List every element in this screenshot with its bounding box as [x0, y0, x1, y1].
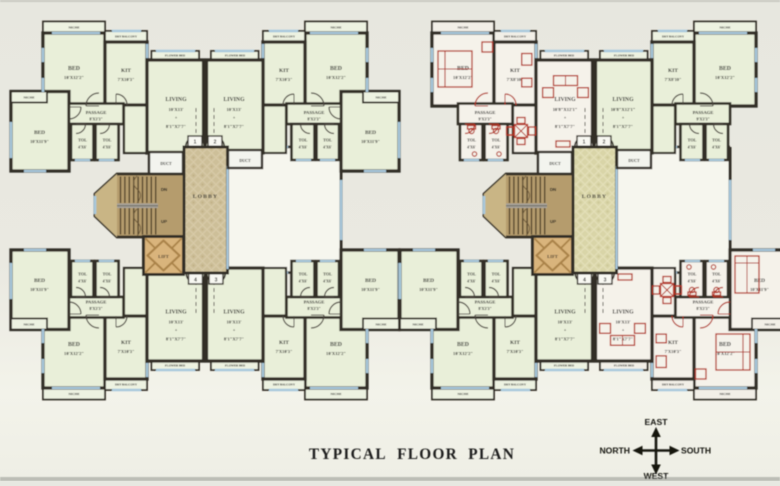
svg-text:8'1"X7'7": 8'1"X7'7" [224, 337, 245, 342]
svg-text:TOL: TOL [492, 138, 501, 143]
svg-text:KIT: KIT [668, 68, 678, 74]
svg-text:+: + [233, 115, 236, 120]
svg-text:4'X6': 4'X6' [323, 280, 332, 284]
svg-text:2: 2 [214, 140, 217, 146]
svg-text:10'X13': 10'X13' [615, 320, 630, 325]
svg-text:KIT: KIT [121, 68, 131, 74]
svg-text:TOL: TOL [688, 138, 697, 143]
svg-text:10'X13': 10'X13' [557, 320, 572, 325]
svg-text:9'X3'3": 9'X3'3" [696, 117, 709, 122]
svg-text:KIT: KIT [121, 340, 131, 346]
svg-text:NICHE: NICHE [764, 322, 776, 326]
svg-text:4'X6': 4'X6' [492, 146, 501, 150]
svg-text:4: 4 [194, 278, 197, 284]
svg-text:NICHE: NICHE [719, 26, 731, 30]
svg-text:FLOWER BED: FLOWER BED [614, 364, 635, 368]
svg-text:10'X11'9": 10'X11'9" [361, 287, 380, 292]
svg-text:DUCT: DUCT [549, 161, 561, 166]
svg-text:1: 1 [194, 140, 197, 146]
svg-text:NICHE: NICHE [23, 322, 35, 326]
svg-text:4: 4 [583, 278, 586, 284]
svg-text:10'X13': 10'X13' [226, 107, 241, 112]
svg-text:DRY BALCONY: DRY BALCONY [662, 35, 685, 39]
svg-text:LIVING: LIVING [223, 310, 245, 316]
svg-text:+: + [622, 328, 625, 333]
svg-text:FLOWER BED: FLOWER BED [225, 364, 246, 368]
svg-text:9'X3'3": 9'X3'3" [478, 117, 491, 122]
svg-text:TOL: TOL [467, 272, 476, 277]
svg-text:LIVING: LIVING [554, 310, 576, 316]
svg-text:8'X3'3": 8'X3'3" [89, 306, 102, 311]
svg-text:TOL: TOL [712, 138, 721, 143]
svg-text:PASSAGE: PASSAGE [475, 299, 496, 304]
svg-text:TOL: TOL [492, 272, 501, 277]
svg-text:NICHE: NICHE [23, 95, 35, 99]
svg-text:PASSAGE: PASSAGE [304, 110, 325, 115]
svg-text:PASSAGE: PASSAGE [475, 110, 496, 115]
svg-text:BED: BED [423, 278, 434, 284]
svg-text:FLOWER BED: FLOWER BED [165, 364, 186, 368]
svg-text:10'8"X12'1": 10'8"X12'1" [553, 107, 578, 112]
svg-text:BED: BED [68, 342, 80, 348]
svg-text:KIT: KIT [510, 340, 520, 346]
svg-text:DRY BALCONY: DRY BALCONY [115, 383, 138, 387]
svg-text:8'X3'3": 8'X3'3" [696, 306, 709, 311]
svg-text:NORTH: NORTH [599, 446, 630, 456]
svg-text:+: + [622, 115, 625, 120]
svg-text:KIT: KIT [279, 340, 289, 346]
svg-text:TOL: TOL [103, 272, 112, 277]
svg-text:EAST: EAST [645, 417, 669, 427]
svg-text:4'X6': 4'X6' [492, 280, 501, 284]
svg-text:DUCT: DUCT [160, 161, 172, 166]
svg-text:LIVING: LIVING [223, 97, 245, 103]
svg-text:TOL: TOL [78, 138, 87, 143]
svg-text:10'X11'9": 10'X11'9" [30, 287, 49, 292]
svg-text:NICHE: NICHE [375, 322, 387, 326]
svg-text:8'1"X7'7": 8'1"X7'7" [166, 337, 187, 342]
svg-text:10'X11'9": 10'X11'9" [419, 287, 438, 292]
svg-text:10'X12'2": 10'X12'2" [64, 351, 84, 356]
svg-text:KIT: KIT [510, 68, 520, 74]
svg-text:SOUTH: SOUTH [681, 446, 711, 456]
svg-text:NICHE: NICHE [719, 392, 731, 396]
svg-text:FLOWER BED: FLOWER BED [165, 54, 186, 58]
svg-text:DUCT: DUCT [628, 158, 640, 163]
svg-text:+: + [175, 115, 178, 120]
svg-text:8'X3'3": 8'X3'3" [478, 306, 491, 311]
svg-text:4'X6': 4'X6' [688, 280, 697, 284]
svg-text:TOL: TOL [323, 138, 332, 143]
svg-text:4'X6': 4'X6' [712, 146, 721, 150]
svg-text:10'X11'9": 10'X11'9" [361, 139, 380, 144]
svg-text:10'X13': 10'X13' [168, 320, 183, 325]
svg-text:7'X10'3": 7'X10'3" [118, 77, 135, 82]
svg-text:8'1"X7'7": 8'1"X7'7" [555, 124, 576, 129]
svg-text:8'1"X7'7": 8'1"X7'7" [613, 337, 634, 342]
svg-text:DRY BALCONY: DRY BALCONY [504, 35, 527, 39]
svg-text:BED: BED [34, 278, 45, 284]
svg-text:3: 3 [604, 278, 607, 284]
svg-text:LIFT: LIFT [158, 254, 169, 259]
svg-text:TOL: TOL [688, 272, 697, 277]
svg-text:4'X6': 4'X6' [467, 280, 476, 284]
svg-text:TOL: TOL [467, 138, 476, 143]
svg-text:TOL: TOL [299, 272, 308, 277]
svg-text:BED: BED [330, 66, 342, 72]
svg-text:4'X6': 4'X6' [467, 146, 476, 150]
svg-text:4'X6': 4'X6' [299, 146, 308, 150]
svg-text:NICHE: NICHE [68, 392, 80, 396]
svg-text:4'X6': 4'X6' [78, 146, 87, 150]
svg-text:UP: UP [550, 219, 556, 224]
svg-text:4'X6': 4'X6' [299, 280, 308, 284]
svg-text:TOL: TOL [299, 138, 308, 143]
svg-text:TOL: TOL [712, 272, 721, 277]
svg-text:KIT: KIT [279, 68, 289, 74]
svg-text:FLOWER BED: FLOWER BED [554, 54, 575, 58]
svg-text:PASSAGE: PASSAGE [693, 110, 714, 115]
svg-text:3: 3 [215, 278, 218, 284]
svg-text:TOL: TOL [103, 138, 112, 143]
svg-text:BED: BED [457, 342, 469, 348]
svg-text:4'X6': 4'X6' [688, 146, 697, 150]
svg-text:4'X6': 4'X6' [323, 146, 332, 150]
svg-text:10'X11'9": 10'X11'9" [30, 139, 49, 144]
svg-text:BED: BED [719, 342, 731, 348]
svg-text:+: + [564, 115, 567, 120]
svg-text:7'X10'3": 7'X10'3" [276, 349, 293, 354]
svg-text:LIVING: LIVING [612, 97, 634, 103]
svg-text:10'8"X12'1": 10'8"X12'1" [611, 107, 636, 112]
svg-text:NICHE: NICHE [412, 322, 424, 326]
svg-text:1: 1 [583, 140, 586, 146]
svg-text:LIVING: LIVING [554, 97, 576, 103]
svg-text:10'X12'2": 10'X12'2" [326, 75, 346, 80]
svg-text:8'1"X7'7": 8'1"X7'7" [555, 337, 576, 342]
svg-text:PASSAGE: PASSAGE [86, 110, 107, 115]
svg-text:+: + [233, 328, 236, 333]
svg-text:10'X12'2": 10'X12'2" [326, 351, 346, 356]
svg-text:DRY BALCONY: DRY BALCONY [115, 35, 138, 39]
svg-text:+: + [564, 328, 567, 333]
svg-text:BED: BED [365, 130, 376, 136]
svg-text:8'X3'3": 8'X3'3" [307, 117, 320, 122]
svg-text:NICHE: NICHE [68, 26, 80, 30]
svg-text:7'X8'10": 7'X8'10" [507, 77, 524, 82]
svg-text:7'X8'10": 7'X8'10" [665, 77, 682, 82]
svg-text:PASSAGE: PASSAGE [86, 299, 107, 304]
svg-text:BED: BED [719, 66, 731, 72]
svg-text:10'X13': 10'X13' [168, 107, 183, 112]
svg-text:7'X10'3": 7'X10'3" [665, 349, 682, 354]
svg-text:4'X6': 4'X6' [103, 280, 112, 284]
svg-text:LOBBY: LOBBY [193, 194, 219, 200]
svg-text:8'X3'3": 8'X3'3" [89, 117, 102, 122]
svg-text:BED: BED [68, 66, 80, 72]
svg-text:LIFT: LIFT [547, 254, 558, 259]
svg-text:TYPICAL FLOOR PLAN: TYPICAL FLOOR PLAN [309, 446, 515, 463]
svg-text:10'X12'2": 10'X12'2" [64, 75, 84, 80]
svg-text:DRY BALCONY: DRY BALCONY [504, 383, 527, 387]
svg-text:4'X6': 4'X6' [103, 146, 112, 150]
svg-text:PASSAGE: PASSAGE [304, 299, 325, 304]
svg-text:WEST: WEST [644, 471, 670, 481]
svg-text:FLOWER BED: FLOWER BED [554, 364, 575, 368]
svg-text:DRY BALCONY: DRY BALCONY [273, 383, 296, 387]
svg-text:NICHE: NICHE [330, 26, 342, 30]
svg-text:NICHE: NICHE [457, 392, 469, 396]
svg-text:+: + [175, 328, 178, 333]
svg-text:BED: BED [330, 342, 342, 348]
svg-text:LIVING: LIVING [165, 310, 187, 316]
svg-text:KIT: KIT [668, 340, 678, 346]
svg-text:7'X10'3": 7'X10'3" [507, 349, 524, 354]
svg-text:DRY BALCONY: DRY BALCONY [662, 383, 685, 387]
svg-text:DRY BALCONY: DRY BALCONY [273, 35, 296, 39]
svg-text:NICHE: NICHE [375, 95, 387, 99]
svg-text:PASSAGE: PASSAGE [693, 299, 714, 304]
svg-text:4'X6': 4'X6' [712, 280, 721, 284]
svg-text:8'1"X7'7": 8'1"X7'7" [613, 124, 634, 129]
svg-text:NICHE: NICHE [457, 26, 469, 30]
svg-text:2: 2 [603, 140, 606, 146]
svg-text:UP: UP [161, 219, 167, 224]
svg-text:BED: BED [34, 130, 45, 136]
svg-text:FLOWER BED: FLOWER BED [614, 54, 635, 58]
svg-text:8'X3'3": 8'X3'3" [307, 306, 320, 311]
svg-text:10'X12'2": 10'X12'2" [715, 75, 735, 80]
svg-text:7'X10'3": 7'X10'3" [276, 77, 293, 82]
svg-text:8'1"X7'7": 8'1"X7'7" [224, 124, 245, 129]
svg-text:10'X12'2": 10'X12'2" [453, 75, 473, 80]
svg-text:8'1"X7'7": 8'1"X7'7" [166, 124, 187, 129]
svg-text:DN: DN [161, 187, 167, 192]
svg-text:DN: DN [550, 187, 556, 192]
svg-text:DUCT: DUCT [239, 158, 251, 163]
svg-text:BED: BED [365, 278, 376, 284]
svg-text:7'X10'3": 7'X10'3" [118, 349, 135, 354]
svg-text:NICHE: NICHE [330, 392, 342, 396]
svg-text:LIVING: LIVING [165, 97, 187, 103]
svg-text:LIVING: LIVING [612, 310, 634, 316]
svg-text:TOL: TOL [78, 272, 87, 277]
svg-text:FLOWER BED: FLOWER BED [225, 54, 246, 58]
svg-text:LOBBY: LOBBY [582, 194, 608, 200]
svg-text:10'X13': 10'X13' [226, 320, 241, 325]
svg-text:TOL: TOL [323, 272, 332, 277]
svg-text:4'X6': 4'X6' [78, 280, 87, 284]
svg-text:10'X12'2": 10'X12'2" [453, 351, 473, 356]
